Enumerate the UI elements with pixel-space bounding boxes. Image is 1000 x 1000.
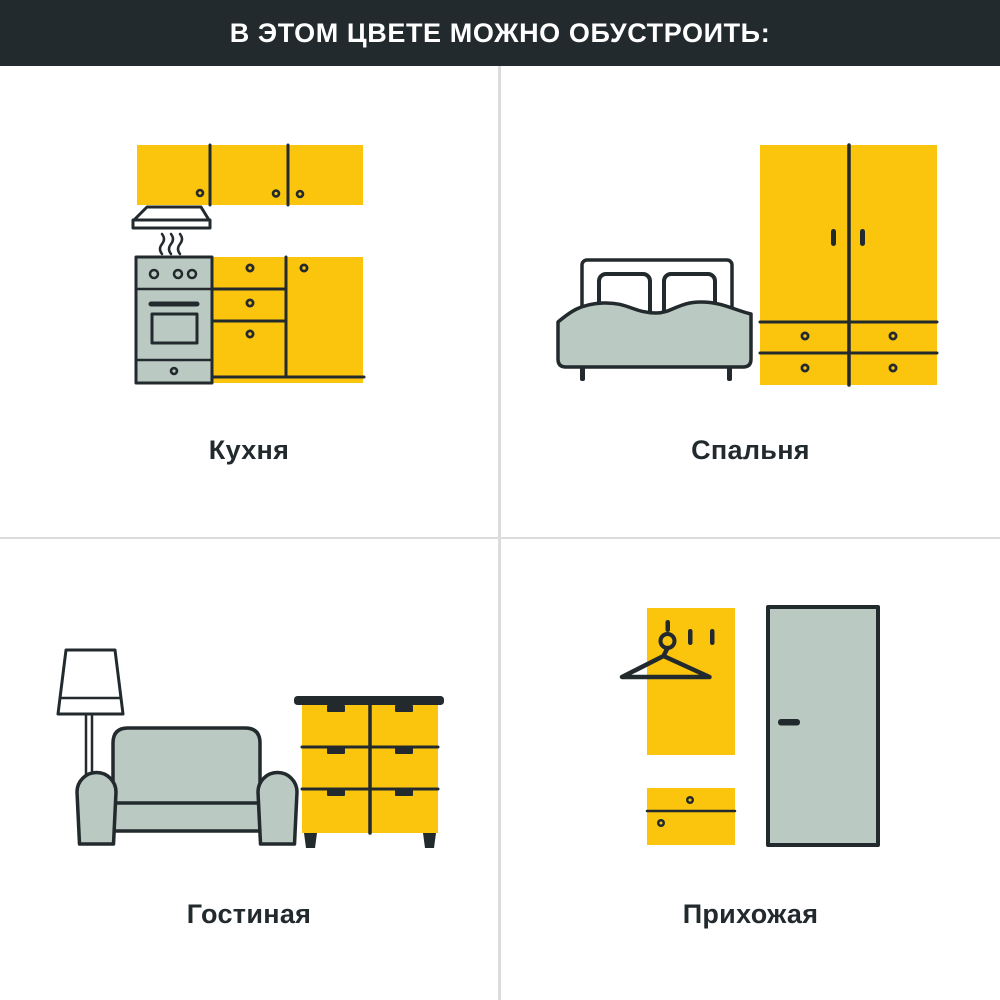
section-hallway: Прихожая (501, 539, 1000, 1000)
coat-rack-and-door-icon (501, 539, 1000, 1000)
door-handle-icon (778, 719, 800, 726)
kitchen-set-icon (0, 66, 498, 537)
shoe-cabinet-icon (647, 788, 735, 845)
sofa-icon (77, 728, 297, 844)
stove-icon (136, 257, 212, 383)
section-label-bedroom: Спальня (501, 435, 1000, 466)
coat-rack-icon (622, 608, 735, 755)
header-banner: В ЭТОМ ЦВЕТЕ МОЖНО ОБУСТРОИТЬ: (0, 0, 1000, 66)
section-kitchen: Кухня (0, 66, 498, 537)
section-label-kitchen: Кухня (0, 435, 498, 466)
door-icon (768, 607, 878, 845)
bed-icon (558, 260, 751, 381)
cooker-hood-icon (133, 207, 210, 254)
sofa-lamp-dresser-icon (0, 539, 498, 1000)
base-cabinets-icon (213, 257, 364, 383)
section-label-living-room: Гостиная (0, 899, 498, 930)
bed-and-wardrobe-icon (501, 66, 1000, 537)
wall-cabinets-icon (137, 145, 363, 205)
wardrobe-icon (760, 145, 937, 385)
page-title: В ЭТОМ ЦВЕТЕ МОЖНО ОБУСТРОИТЬ: (230, 18, 771, 49)
section-bedroom: Спальня (501, 66, 1000, 537)
section-living-room: Гостиная (0, 539, 498, 1000)
section-label-hallway: Прихожая (501, 899, 1000, 930)
dresser-icon (294, 696, 444, 848)
